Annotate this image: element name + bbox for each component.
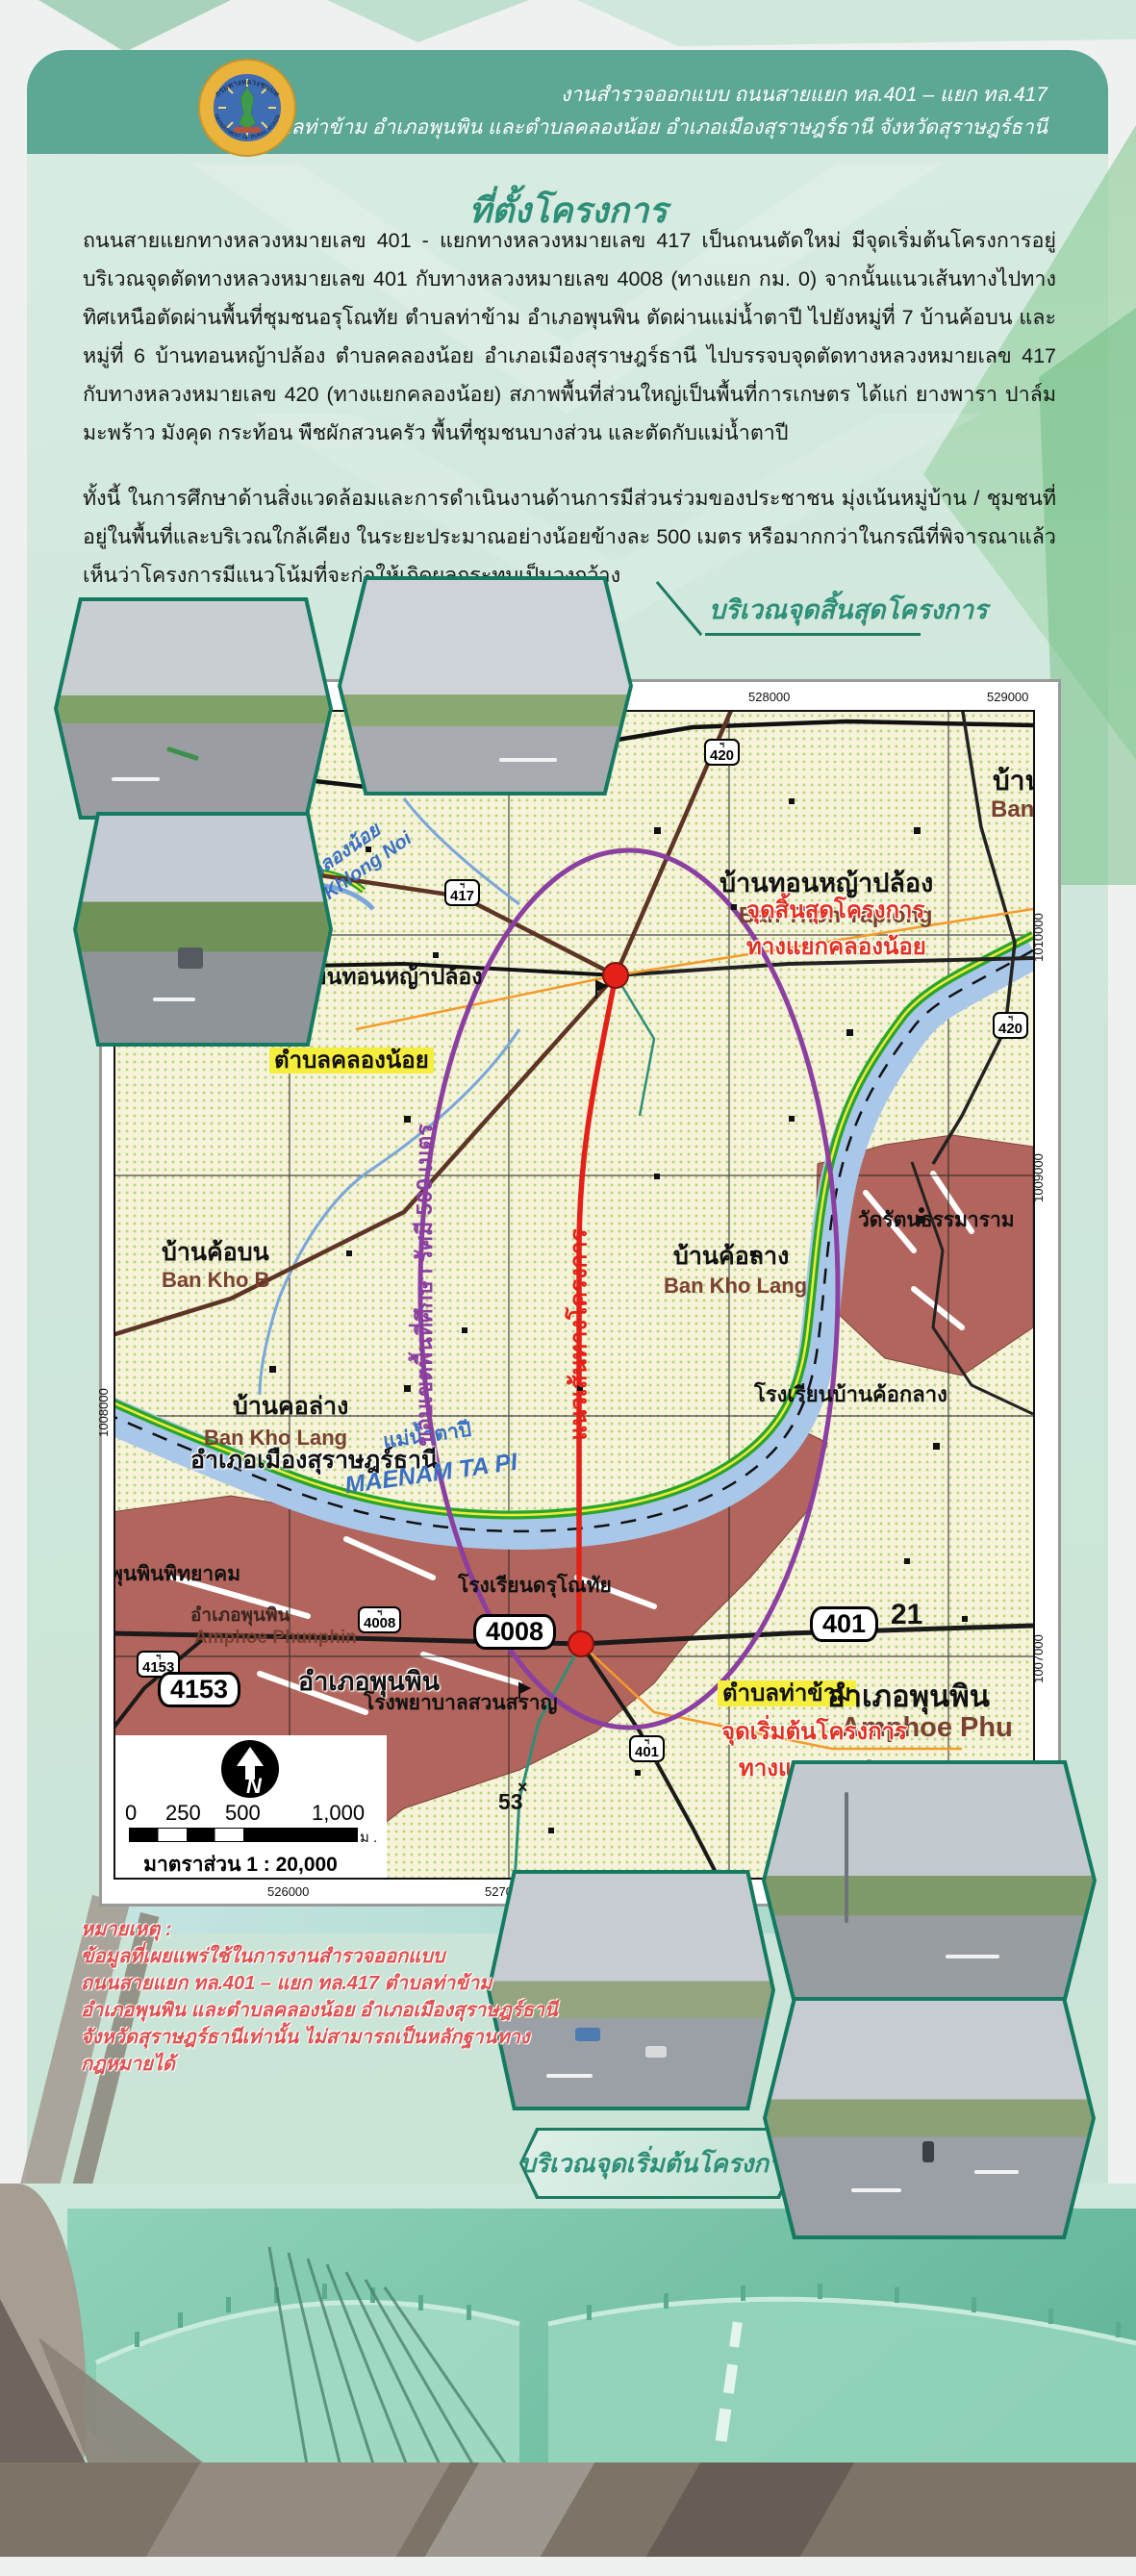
start-point [568,1631,593,1656]
header-line2: ตำบลท่าข้าม อำเภอพุนพิน และตำบลคลองน้อย … [254,112,1048,144]
photo-intersection-end [341,580,629,792]
note-block: หมายเหตุ : ข้อมูลที่เผยแพร่ใช้ในการงานสำ… [81,1916,581,2078]
department-rural-roads-logo: กรมทางหลวงชนบท DEPARTMENT OF RURAL ROADS [197,58,297,158]
scale-unit: ม . [360,1826,377,1849]
map-coord-1008000: 1008000 [96,1388,111,1437]
footer-windshield [67,2209,1136,2470]
deco-top-right [577,0,1136,46]
shield-417: ฯ417 [444,879,480,906]
label-ban-bang-en: Ban Bang [991,796,1035,823]
label-end-point-1: จุดสิ้นสุดโครงการ [746,891,924,928]
note-line-2: ถนนสายแยก ทล.401 – แยก ทล.417 ตำบลท่าข้า… [81,1970,581,1997]
header-text: งานสำรวจออกแบบ ถนนสายแยก ทล.401 – แยก ทล… [254,79,1048,144]
deco-top-left [38,0,231,52]
note-line-1: ข้อมูลที่เผยแพร่ใช้ในการงานสำรวจออกแบบ [81,1943,581,1970]
label-alignment: แนวเส้นทางโครงการ [560,1225,597,1446]
shield-420-a-num: 420 [710,747,734,764]
scale-box: N 0 250 500 1,000 ม . มาตราส่วน 1 : 20,0… [115,1735,387,1878]
photo-hex-start-3 [763,1997,1096,2239]
shield-420-b: ฯ420 [993,1012,1028,1039]
photo-hex-start-1 [762,1760,1097,2001]
footer-road-art [67,2209,1136,2470]
start-area-callout: บริเวณจุดเริ่มต้นโครงการ [519,2144,795,2184]
end-area-callout: บริเวณจุดสิ้นสุดโครงการ [709,589,988,630]
label-kho-bon-en: Ban Kho B [162,1268,269,1293]
shield-420-b-num: 420 [998,1021,1022,1037]
map-coord-526000: 526000 [267,1884,309,1899]
shield-401-num: 401 [635,1744,659,1760]
scale-1000: 1,000 [312,1801,365,1826]
end-point [603,963,628,988]
label-kho-lang2: บ้านคอล่าง [233,1387,348,1426]
label-school-kho-klang: โรงเรียนบ้านค้อกลาง [754,1377,947,1411]
compass-n: N [246,1774,263,1798]
namebox-4008: 4008 [473,1614,556,1650]
footer-artwork [0,2184,1136,2557]
logo-seal-icon: กรมทางหลวงชนบท DEPARTMENT OF RURAL ROADS [197,58,297,158]
scale-0: 0 [125,1801,137,1826]
label-kho-lang: บ้านค้อลาง [673,1237,789,1275]
label-study-boundary: ขอบเขตพื้นที่ศึกษา รัศมี 500 เมตร [408,1124,442,1447]
namebox-401: 401 [810,1606,878,1642]
scale-bar [129,1828,358,1842]
note-title: หมายเหตุ : [81,1916,581,1943]
label-kho-bon: บ้านค้อบน [162,1233,269,1272]
photo-intersection-motorcycle [767,2001,1092,2235]
photo-road-trees [77,816,329,1043]
paragraph-1: ถนนสายแยกทางหลวงหมายเลข 401 - แยกทางหลวง… [83,221,1056,452]
photo-street-poles [766,1764,1093,1997]
label-phunphin-school: พุนพินพิทยาคม [114,1558,240,1590]
scale-caption: มาตราส่วน 1 : 20,000 [115,1849,366,1880]
photo-hex-end-1 [54,597,333,820]
label-darunothai: โรงเรียนดรุโณทัย [458,1570,612,1602]
note-line-4: จังหวัดสุราษฎร์ธานีเท่านั้น ไม่สามารถเป็… [81,2024,581,2078]
photo-hex-end-2 [338,576,633,796]
label-start-point-1: จุดเริ่มต้นโครงการ [721,1712,907,1750]
label-421-partial: 21 [891,1599,922,1631]
namebox-4153: 4153 [158,1672,240,1707]
deco-top-mid [327,0,529,42]
label-spot53: 53 [498,1789,523,1815]
label-amphoe-phunphin-s: อำเภอพุนพิน [190,1601,290,1629]
map-coord-528000: 528000 [748,690,790,704]
label-kho-lang-en: Ban Kho Lang [664,1274,807,1299]
note-line-3: อำเภอพุนพิน และตำบลคลองน้อย อำเภอเมืองสุ… [81,1997,581,2024]
tambon-khlong-noi-text: ตำบลคลองน้อย [269,1048,434,1073]
end-callout-underline [705,633,921,636]
photo-road-elevated [58,601,329,816]
poster-page: { "header": { "line1": "งานสำรวจออกแบบ ถ… [0,0,1136,2557]
label-wat-rattana: วัดรัตนธรรมาราม [858,1204,1015,1236]
shield-420-a: ฯ420 [704,739,740,766]
scale-250: 250 [165,1801,201,1826]
photo-hex-end-3 [73,812,333,1047]
shield-4008-num: 4008 [364,1615,395,1631]
shield-4008: ฯ4008 [358,1606,401,1633]
shield-401: ฯ401 [629,1735,665,1762]
map-coord-529000: 529000 [987,690,1028,704]
start-area-banner: บริเวณจุดเริ่มต้นโครงการ [519,2128,796,2199]
label-hospital: โรงพยาบาลสวนสราญ [364,1687,558,1719]
label-amphoe-phunphin-s-en: Amphoe Phunphin [194,1628,357,1649]
label-end-point-2: ทางแยกคลองน้อย [746,927,926,965]
header-line1: งานสำรวจออกแบบ ถนนสายแยก ทล.401 – แยก ทล… [254,79,1048,112]
scale-500: 500 [225,1801,261,1826]
north-compass-icon: N [215,1737,285,1801]
shield-417-num: 417 [450,888,474,904]
start-area-banner-inner: บริเวณจุดเริ่มต้นโครงการ [522,2131,794,2196]
